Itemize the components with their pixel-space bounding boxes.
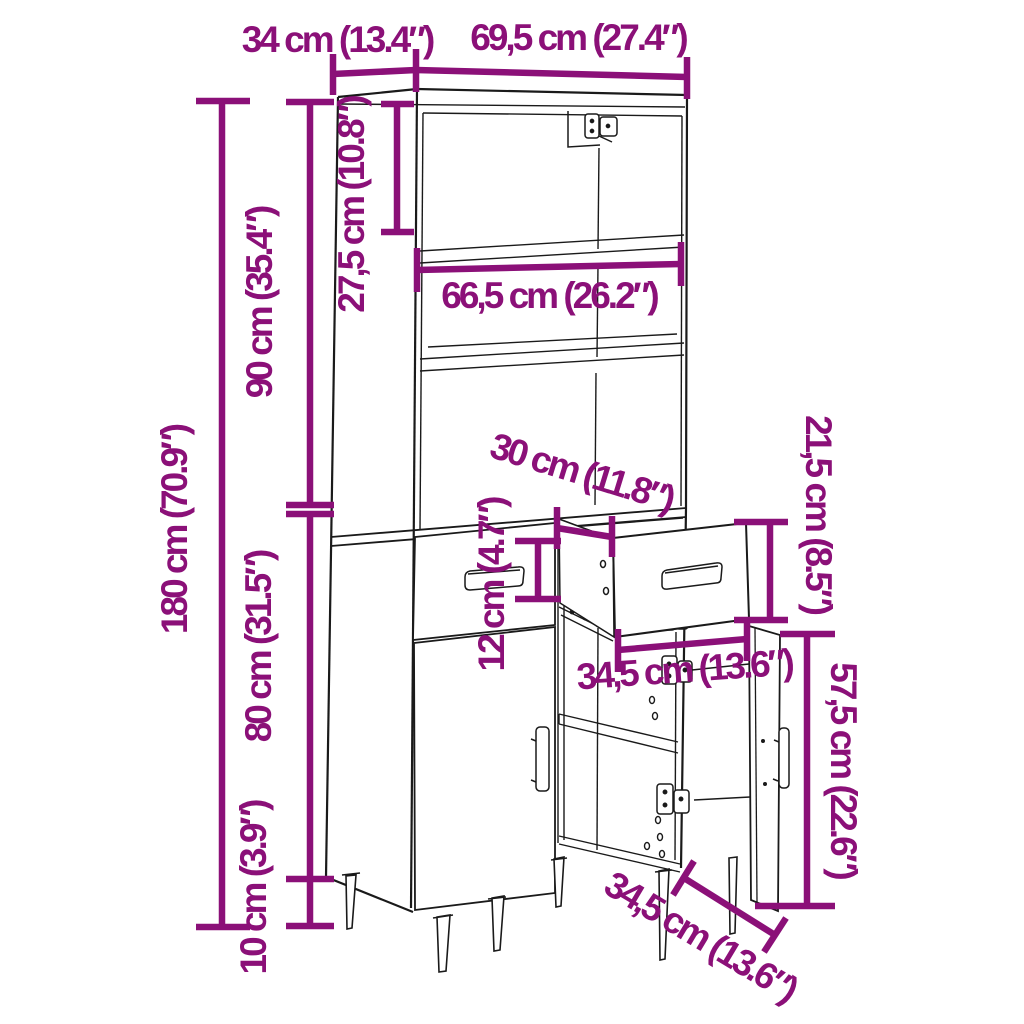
drawer-front [613,523,749,637]
dim-label-drawer-depth: 30 cm (11.8″) [486,425,680,520]
interior-shelf [559,714,678,753]
hutch-shelf-middle [420,334,684,371]
door-hinge-bottom-icon [657,784,750,814]
dim-label-leg-height: 10 cm (3.9″) [233,800,274,975]
base-carcass-edges [326,877,413,912]
dim-label-drawer-front-height: 21,5 cm (8.5″) [798,415,839,615]
dim-label-depth: 34 cm (13.4″) [242,19,434,60]
top-hinge-icon [568,111,617,147]
hutch-shelf-upper [420,235,684,263]
highboard-diagram-canvas: 34 cm (13.4″) 69,5 cm (27.4″) 27,5 cm (1… [0,0,1024,1024]
dim-label-width: 69,5 cm (27.4″) [470,17,687,58]
dim-label-total-height: 180 cm (70.9″) [154,424,195,634]
dim-label-top-compartment-height: 27,5 cm (10.8″) [331,96,372,313]
furniture-dimension-diagram: 34 cm (13.4″) 69,5 cm (27.4″) 27,5 cm (1… [0,0,1024,1024]
dim-label-upper-section-height: 90 cm (35.4″) [239,206,280,398]
shelf-pin-holes [645,697,665,858]
pulled-out-drawer [559,519,749,641]
dim-line-top-compartment [381,104,414,232]
dim-label-door-height: 57,5 cm (22.6″) [823,662,864,879]
dim-label-drawer-box-height: 12 cm (4.7″) [471,497,512,672]
dim-label-lower-section-height: 80 cm (31.5″) [238,550,279,742]
dim-line-upper-section [286,102,334,505]
dim-label-interior-width: 66,5 cm (26.2″) [441,275,658,316]
dim-line-legs [286,879,334,926]
